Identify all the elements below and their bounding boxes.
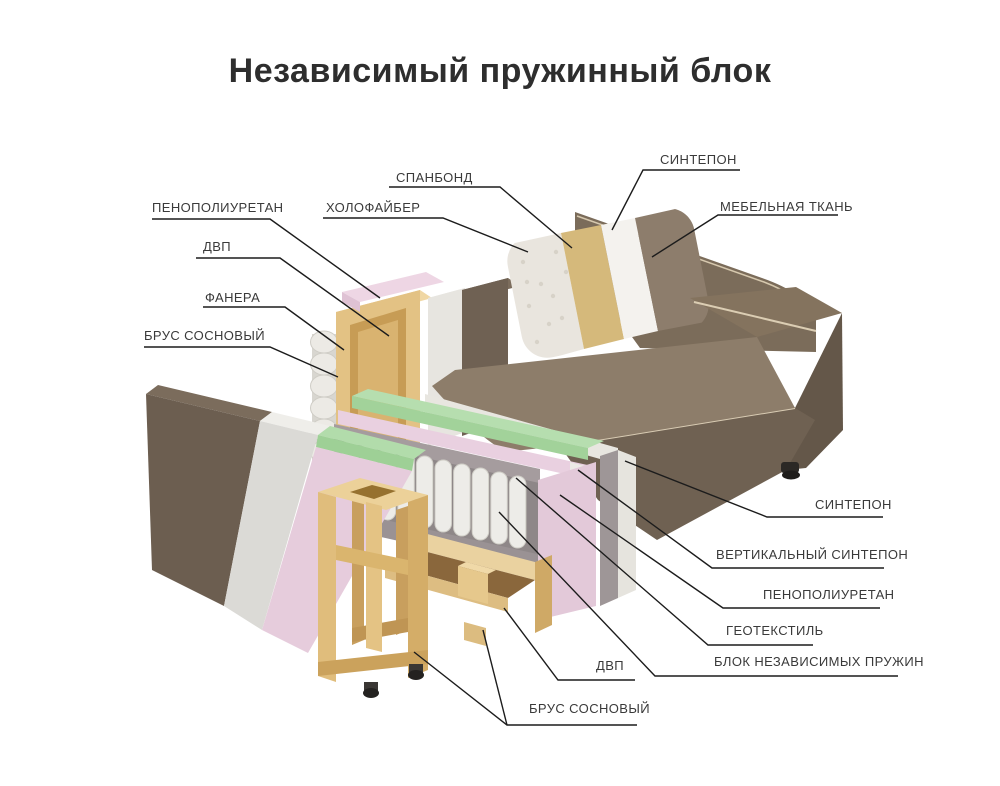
diagram-page: Независимый пружинный блок [0,0,1000,786]
label-fanera: ФАНЕРА [205,291,260,304]
geotextile-column [600,450,618,606]
label-penopoliuretan-right: ПЕНОПОЛИУРЕТАН [763,588,894,601]
leader-brus-left [144,347,338,377]
leader-brus-bottom-b [483,630,507,725]
label-dvp-bottom: ДВП [596,659,624,672]
label-vertikalny-sintepon: ВЕРТИКАЛЬНЫЙ СИНТЕПОН [716,548,908,561]
label-blok-pruzhin: БЛОК НЕЗАВИСИМЫХ ПРУЖИН [714,655,924,668]
box-foot-block [464,622,486,646]
label-dvp-left: ДВП [203,240,231,253]
label-mebelnaya-tkan: МЕБЕЛЬНАЯ ТКАНЬ [720,200,853,213]
sofa-foot [781,462,800,480]
label-geotekstil: ГЕОТЕКСТИЛЬ [726,624,824,637]
pine-frame [318,478,428,698]
label-sintepon-top: СИНТЕПОН [660,153,737,166]
sintepon-column [618,450,636,598]
label-brus-bottom: БРУС СОСНОВЫЙ [529,702,650,715]
label-spanbond: СПАНБОНД [396,171,473,184]
leader-holofiber [323,218,528,252]
label-penopoliuretan-left: ПЕНОПОЛИУРЕТАН [152,201,283,214]
label-brus-left: БРУС СОСНОВЫЙ [144,329,265,342]
label-sintepon-right: СИНТЕПОН [815,498,892,511]
label-holofiber: ХОЛОФАЙБЕР [326,201,420,214]
